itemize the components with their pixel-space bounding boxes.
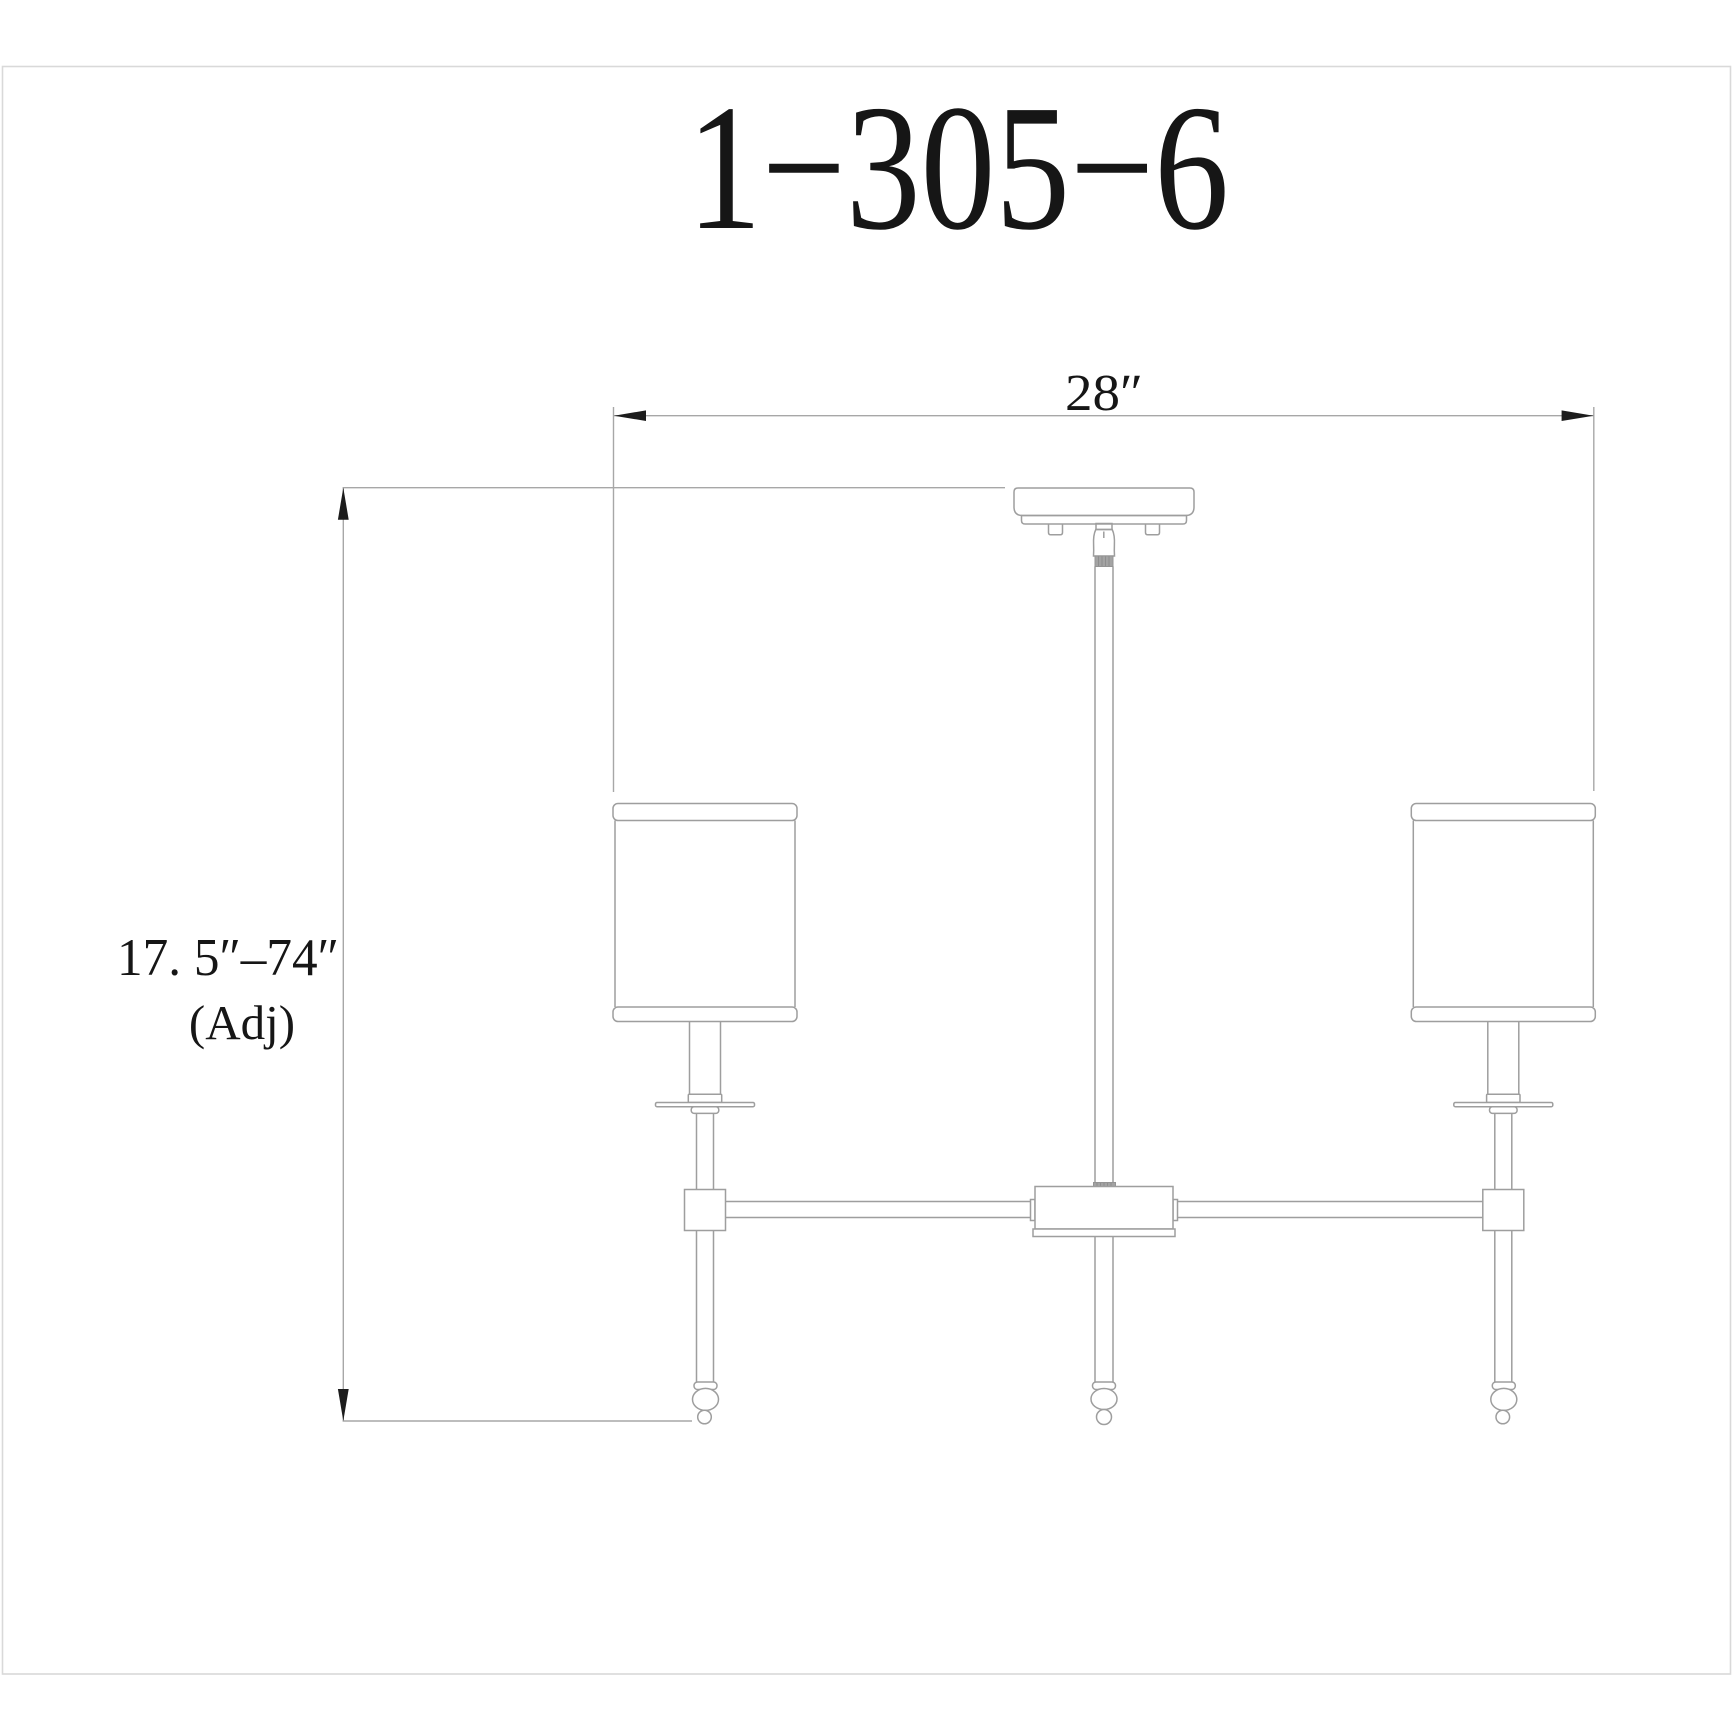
svg-text:28″: 28″ — [1065, 365, 1143, 422]
svg-text:(Adj): (Adj) — [189, 995, 295, 1050]
svg-text:1−305−6: 1−305−6 — [687, 68, 1229, 267]
svg-text:17. 5″–74″: 17. 5″–74″ — [117, 929, 339, 987]
